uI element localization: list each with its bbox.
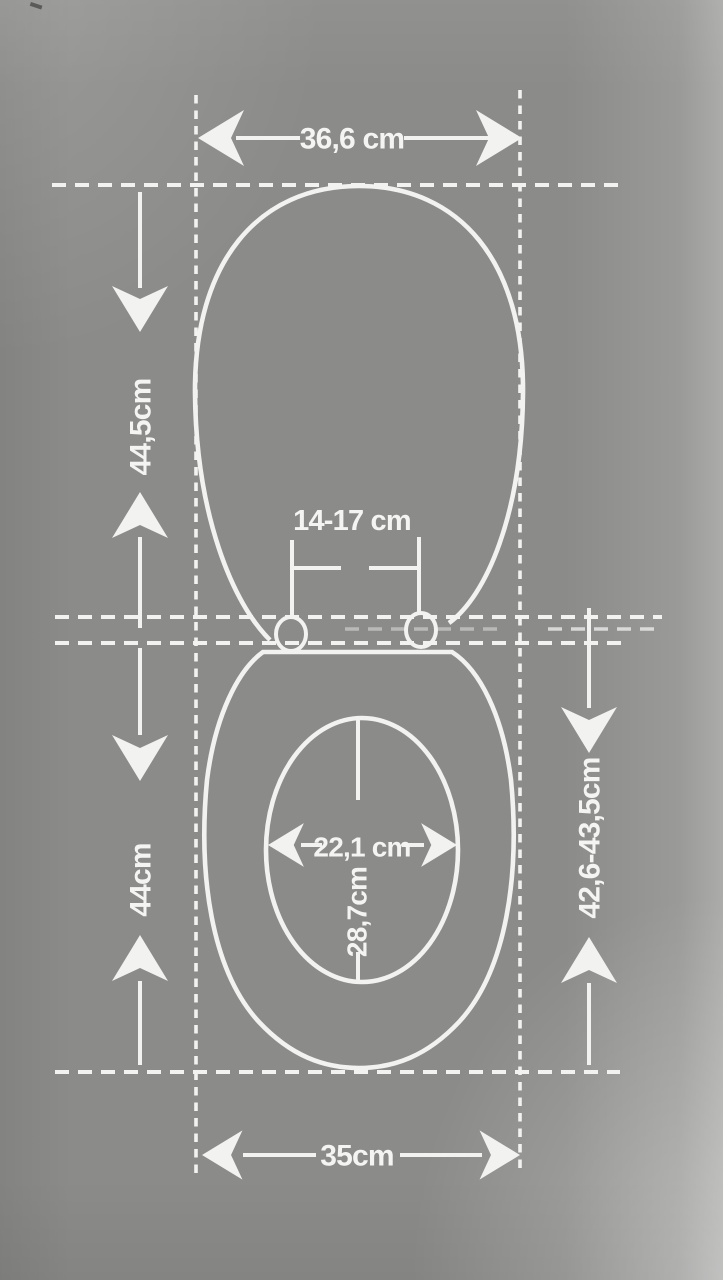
diagram-canvas: 36,6 cm 44,5cm 14-17 cm 44cm [0,0,723,1280]
lid-outline [195,186,523,640]
mount-length-range-label: 42,6-43,5cm [574,757,607,918]
arrowhead-right-icon [421,823,457,867]
dim-inner-width: 22,1 cm [268,823,457,867]
arrowhead-right-icon [480,1130,520,1179]
seat-length-label: 44cm [125,843,158,917]
arrowhead-down-icon [112,735,168,781]
dim-hinge-distance: 14-17 cm [292,505,419,617]
dim-seat-width: 35cm [202,1130,520,1179]
dim-mount-length-range: 42,6-43,5cm [561,608,617,1065]
dim-seat-length: 44cm [112,648,168,1065]
arrowhead-up-icon [561,937,617,983]
dim-lid-length: 44,5cm [112,192,168,628]
inner-width-label: 22,1 cm [313,832,410,863]
arrowhead-left-icon [268,823,304,867]
guide-lines [52,90,662,1175]
arrowhead-down-icon [561,707,617,753]
arrowhead-left-icon [202,1130,242,1179]
lid-length-label: 44,5cm [125,379,158,476]
photo-speck [30,2,43,10]
arrowhead-up-icon [112,492,168,538]
dim-lid-width: 36,6 cm [198,110,522,166]
lid-width-label: 36,6 cm [300,123,404,156]
hinge-left [276,617,306,651]
arrowhead-down-icon [112,286,168,332]
arrowhead-up-icon [112,935,168,981]
inner-length-label: 28,7cm [342,867,373,957]
seat-width-label: 35cm [320,1140,394,1173]
hinge-distance-label: 14-17 cm [293,505,411,537]
dimension-diagram: 36,6 cm 44,5cm 14-17 cm 44cm [0,0,723,1280]
